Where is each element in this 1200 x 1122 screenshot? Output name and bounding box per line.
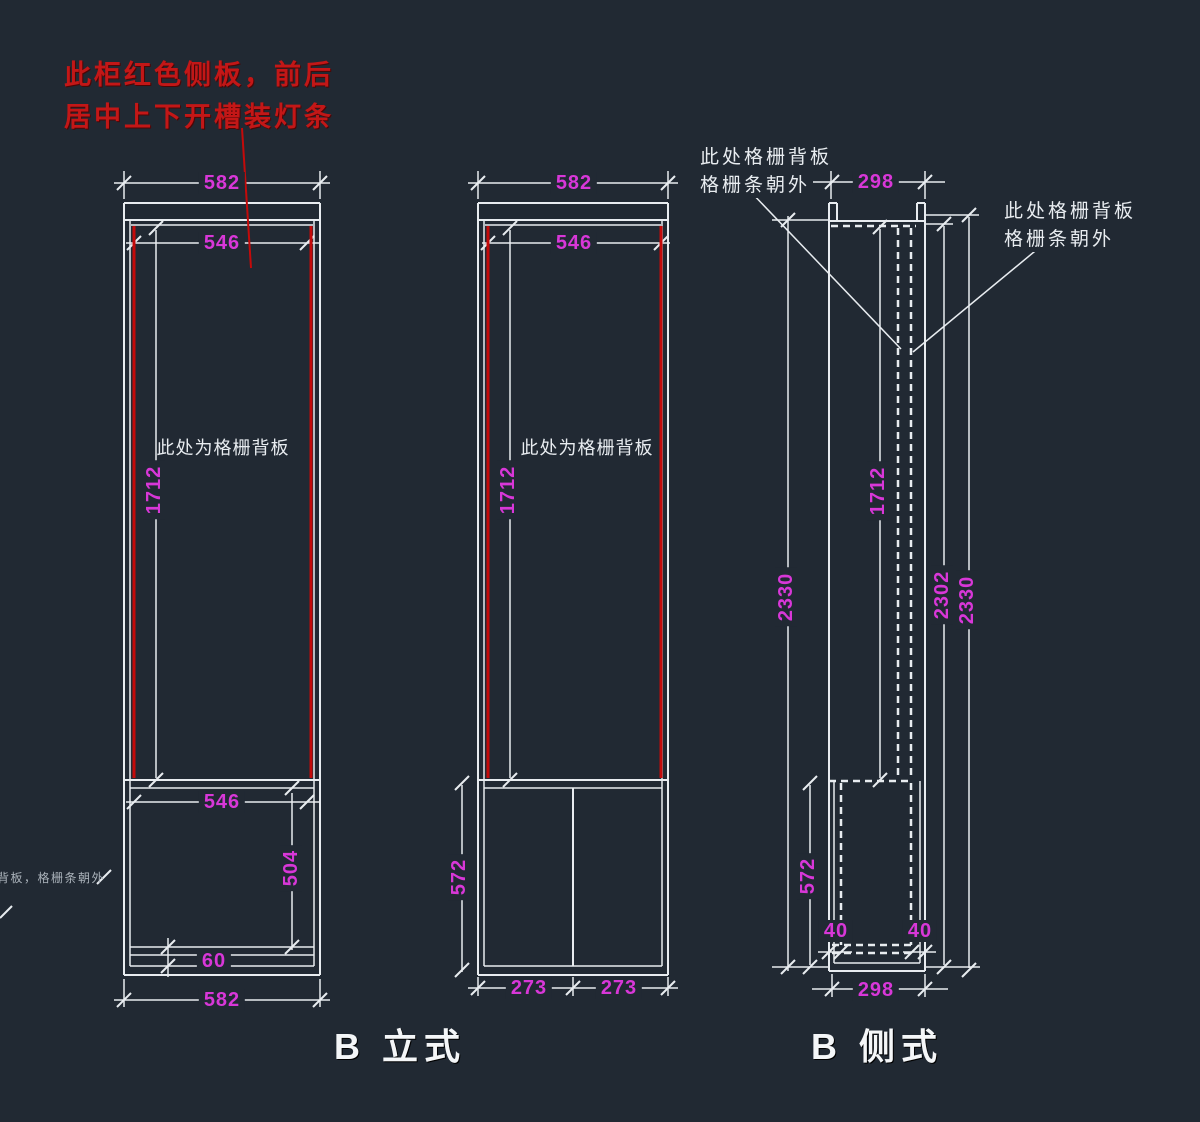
front1-dim-base-height: 60	[197, 950, 231, 972]
side-dim-back-gap-right: 40	[903, 920, 937, 942]
side-note-right-line-1: 此处格栅背板	[1001, 195, 1139, 224]
front1-dim-grille-height: 1712	[143, 461, 165, 520]
leader-left-note	[748, 189, 901, 349]
leader-right-note	[913, 247, 1040, 352]
side-dim-top-depth: 298	[853, 171, 899, 193]
red-note-line-2: 居中上下开槽装灯条	[64, 104, 334, 131]
side-dim-lower-height: 572	[797, 853, 819, 899]
front1-grille-note: 此处为格栅背板	[157, 439, 290, 457]
front1-dim-inner-width: 546	[199, 232, 245, 254]
front2-dim-grille-height: 1712	[497, 461, 519, 520]
side-dim-grille-height: 1712	[867, 462, 889, 521]
drawing-linework	[0, 0, 1200, 1122]
side-view-label: B 侧式	[811, 1029, 943, 1065]
front2-dim-door-right: 273	[596, 977, 642, 999]
front1-dim-bottom-width: 582	[199, 989, 245, 1011]
side-note-right-line-2: 格栅条朝外	[1001, 223, 1117, 252]
front-view-label: B 立式	[334, 1029, 466, 1065]
edge-cut-note: 格栅背板，格栅条朝外	[0, 869, 105, 886]
side-note-left-line-1: 此处格栅背板	[697, 141, 835, 170]
side-dim-overall-right: 2330	[956, 571, 978, 630]
side-dim-bottom-depth: 298	[853, 979, 899, 1001]
front2-grille-note: 此处为格栅背板	[521, 439, 654, 457]
front2-dim-lower-height: 572	[448, 854, 470, 900]
front2-dim-door-left: 273	[506, 977, 552, 999]
front2-dim-top-width: 582	[551, 172, 597, 194]
front1-dim-top-width: 582	[199, 172, 245, 194]
cad-drawing-canvas: 此柜红色侧板，前后 居中上下开槽装灯条 582 546 1712 此处为格栅背板…	[0, 0, 1200, 1122]
side-dim-overall-left: 2330	[775, 568, 797, 627]
side-note-left-line-2: 格栅条朝外	[697, 169, 813, 198]
front1-dim-lower-height: 504	[280, 845, 302, 891]
side-dim-inner-height: 2302	[931, 566, 953, 625]
red-note-line-1: 此柜红色侧板，前后	[64, 62, 334, 89]
front2-dim-inner-width: 546	[551, 232, 597, 254]
front1-dim-shelf-width: 546	[199, 791, 245, 813]
side-dim-back-gap-left: 40	[819, 920, 853, 942]
